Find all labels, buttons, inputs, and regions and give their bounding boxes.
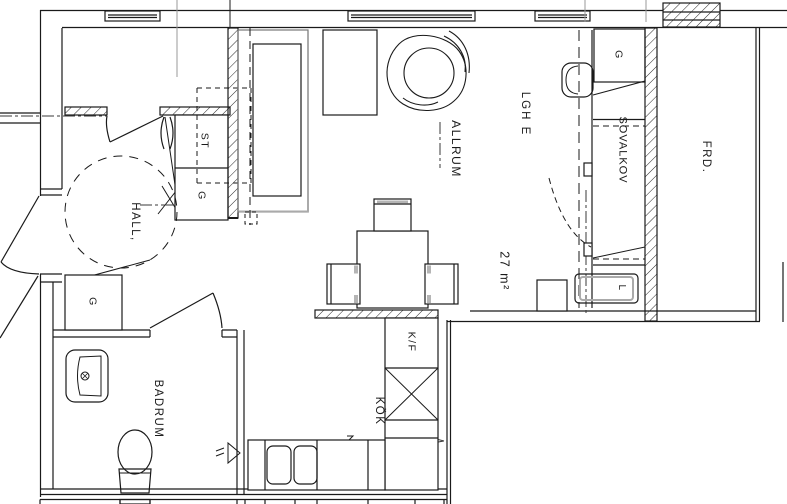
room-label-sleeping-alcove: SOVALKOV <box>617 116 628 183</box>
laundry-appliance <box>575 274 638 303</box>
side-table <box>323 30 377 115</box>
appliance-label-laundry: L <box>616 284 626 291</box>
neighbour-door-leaf <box>0 276 38 338</box>
armchair <box>387 31 469 110</box>
window-alcove <box>535 11 590 21</box>
hall-door-swing-marks <box>65 117 180 283</box>
bathroom-door <box>150 293 222 328</box>
room-label-kitchen: KÖK <box>372 397 384 426</box>
room-label-living: ALLRUM <box>450 120 462 178</box>
closet-label-g-hall-lower: G <box>87 297 98 307</box>
wall-section-hatched-top <box>663 3 720 27</box>
room-label-hall: HALL, <box>128 202 140 241</box>
closet-g-alcove <box>593 29 645 95</box>
toilet <box>118 430 152 493</box>
entrance-door <box>0 196 39 338</box>
stool <box>537 280 567 311</box>
appliance-label-fridge-freezer: K/F <box>406 332 417 353</box>
partition-wall-hatched <box>228 28 238 218</box>
window-hall <box>105 11 160 21</box>
dining-chair-right <box>425 264 458 304</box>
closet-label-g-alcove: G <box>613 50 624 60</box>
window-livingroom <box>348 11 475 21</box>
hall-door <box>106 116 173 149</box>
room-label-bathroom: BADRUM <box>151 380 163 439</box>
sofa-bed <box>238 28 308 225</box>
nightstand <box>562 63 593 97</box>
hall-north-wall <box>65 107 230 115</box>
alcove-partition <box>579 30 592 308</box>
closet-label-st: ST <box>199 133 210 149</box>
unit-id-label: LGH E <box>518 92 530 137</box>
bathroom-sink <box>66 350 108 402</box>
dining-table <box>357 231 428 308</box>
storage-wall-hatched <box>645 28 657 321</box>
bed-area <box>549 120 645 266</box>
floor-plan: HALL, ALLRUM SOVALKOV KÖK BADRUM FRD. LG… <box>0 0 787 504</box>
room-label-storage: FRD. <box>699 141 711 174</box>
closet-label-g-hall-upper: G <box>196 191 207 201</box>
dining-chair-top <box>374 199 411 231</box>
unit-area-label: 27 m² <box>498 251 511 290</box>
dining-chair-left <box>327 264 360 304</box>
kitchen-north-wall <box>315 310 438 318</box>
floor-plan-drawing <box>0 0 787 504</box>
